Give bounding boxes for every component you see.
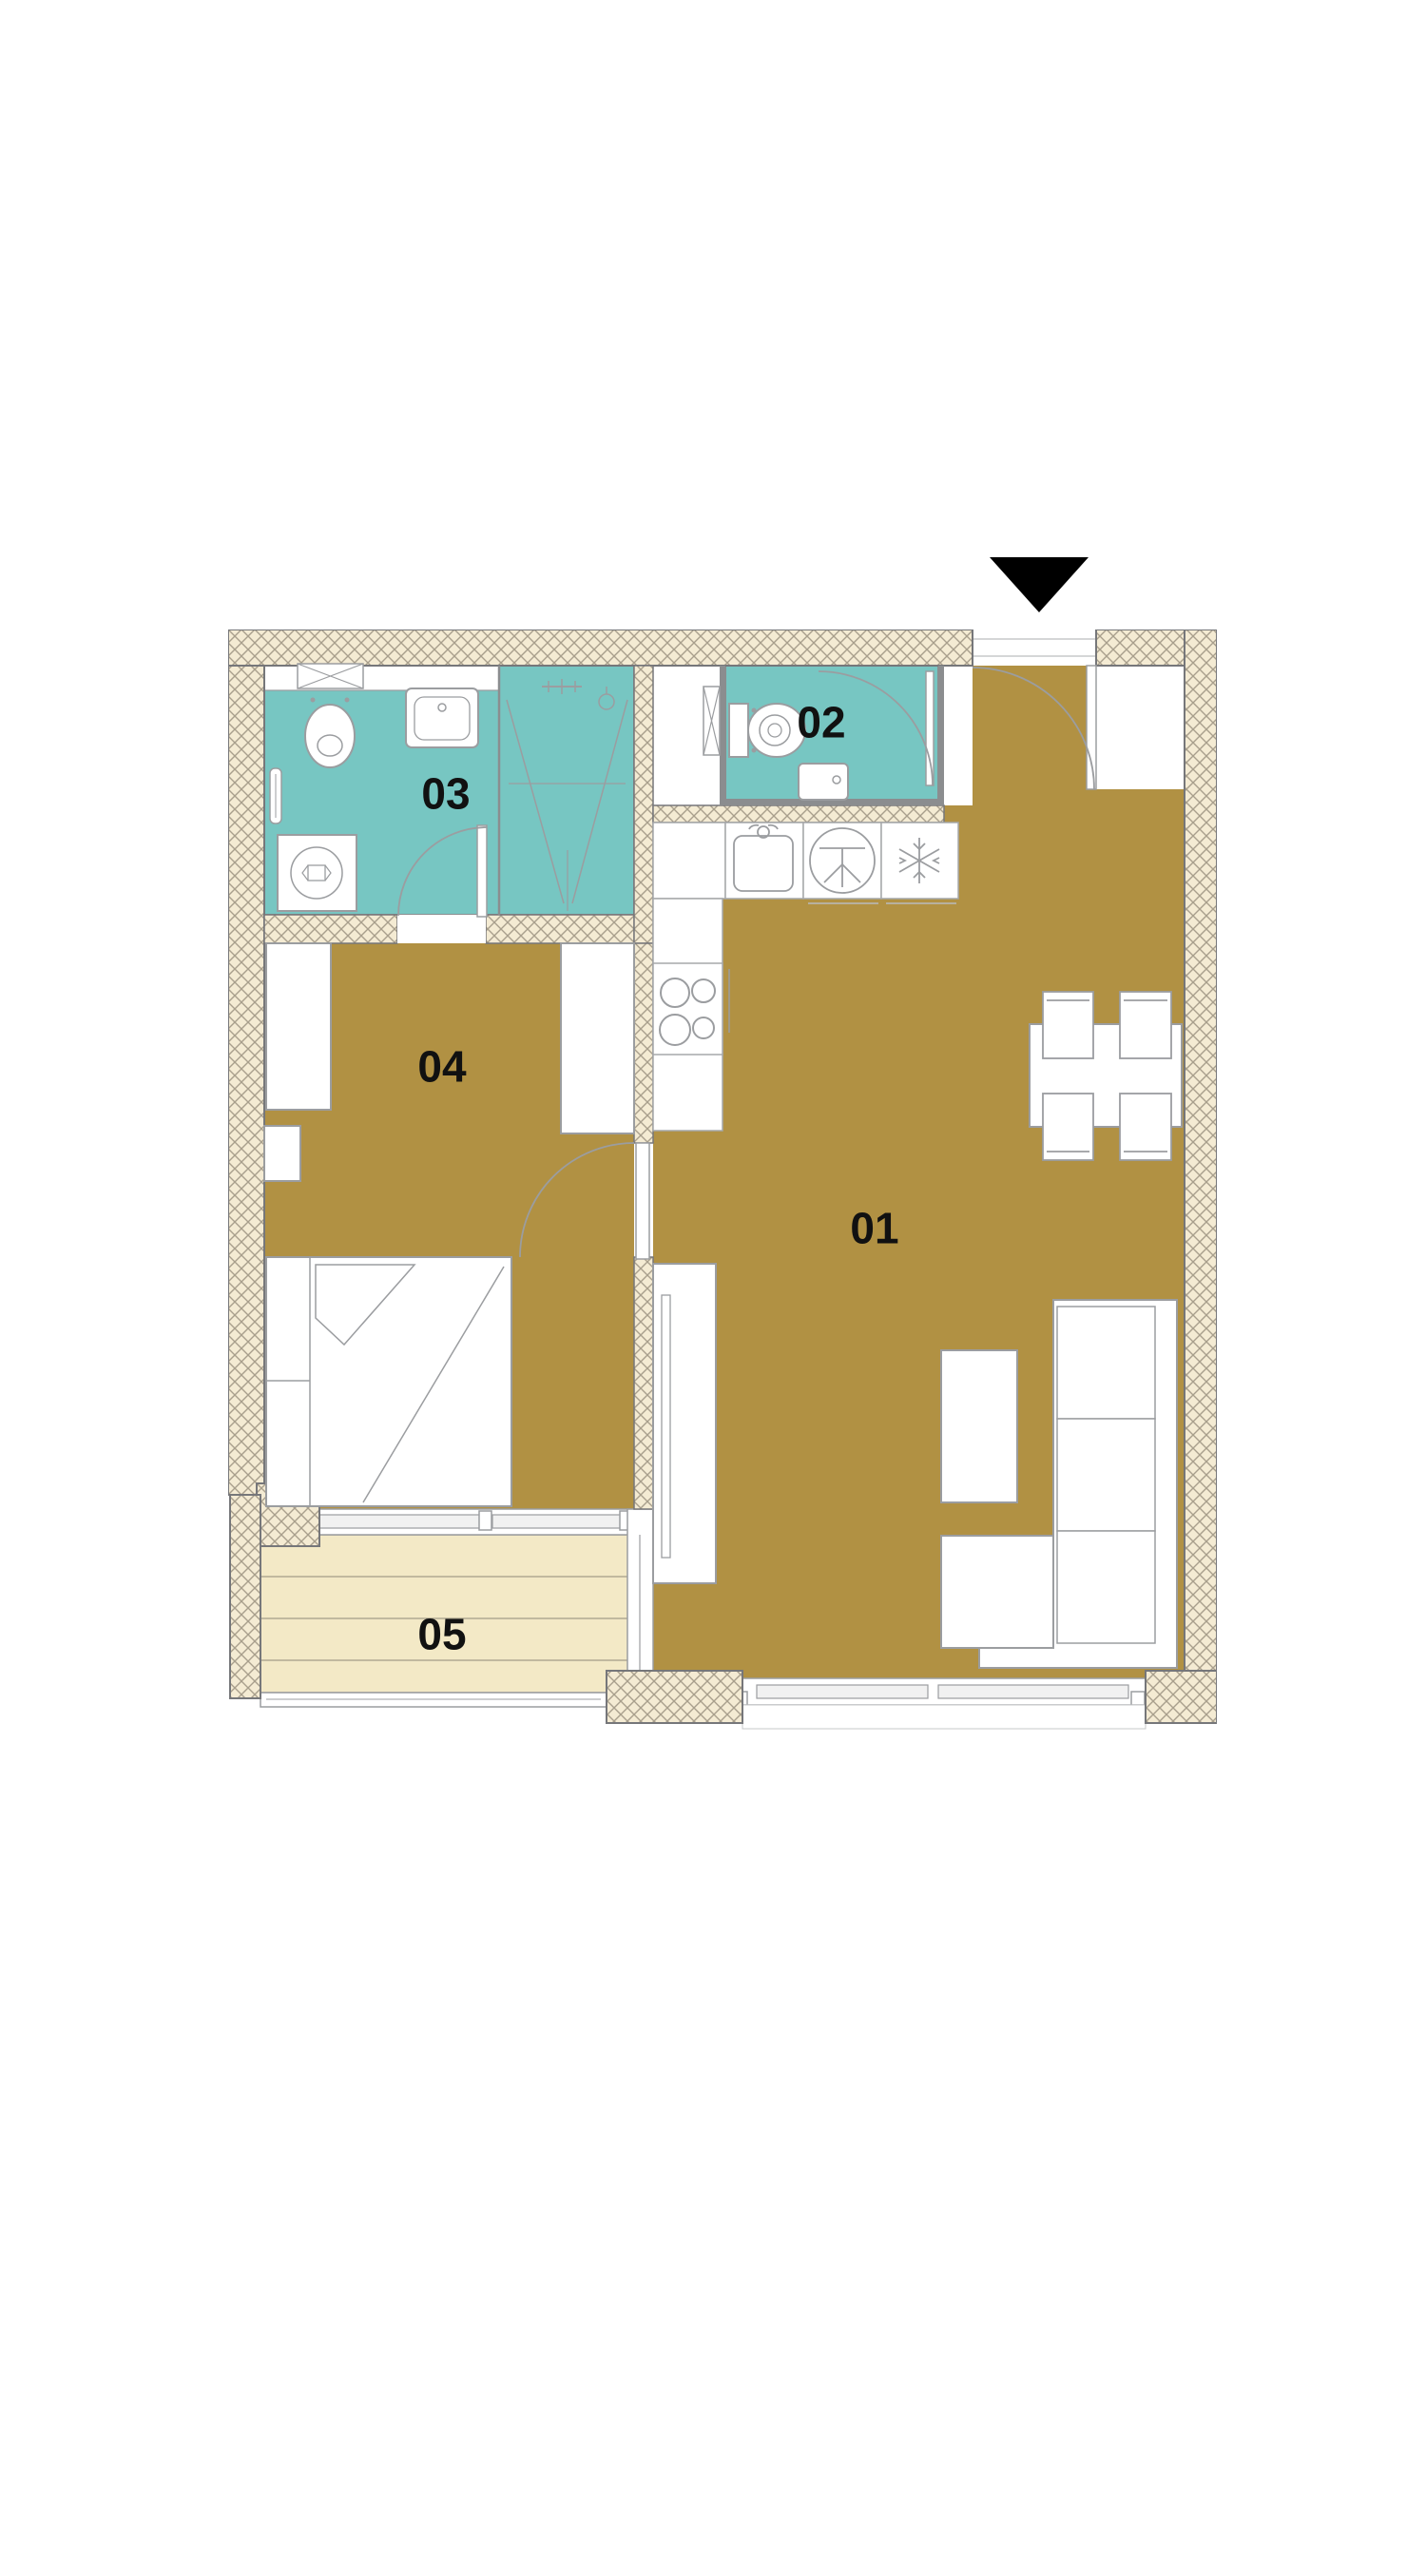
sofa-chaise [941,1536,1053,1648]
coffee-table [941,1350,1017,1502]
chair [1120,992,1171,1058]
window-panel [312,1515,483,1528]
sink-icon [406,688,478,747]
sofa-cushions [1057,1307,1155,1643]
bathroom-bottom-wall-right [486,915,634,943]
chair [1043,992,1093,1058]
floor-plan-page: 01 02 03 04 05 [0,0,1426,2576]
window-cap [479,1511,491,1530]
room-label-01: 01 [850,1204,898,1253]
wall-top-left [228,629,973,666]
entry-closet [1096,666,1185,789]
window-panel [757,1685,928,1698]
bottom-pier-left [607,1671,742,1723]
wc-side-column [944,666,973,805]
bedroom-partition-upper [634,943,653,1143]
nightstand [264,1126,300,1181]
chair [1043,1094,1093,1160]
wall-right [1185,629,1217,1723]
sink-icon [799,764,848,800]
window-sill [742,1705,1146,1729]
chair [1120,1094,1171,1160]
hall-partition-wall [634,666,653,943]
vent-shaft-icon [703,687,720,755]
window-panel [492,1515,626,1528]
window-cap [1131,1692,1145,1705]
wc-bottom-strip-wall [653,805,944,823]
wall-left [228,666,264,1495]
toilet-icon [729,704,805,757]
floor-plan: 01 02 03 04 05 [228,629,1217,1752]
bed [266,1257,511,1506]
bathroom-bottom-wall-left [264,915,397,943]
entrance-arrow-icon [990,557,1089,612]
wc-wall-right [938,666,944,805]
tv-unit [653,1264,716,1583]
room-label-02: 02 [797,698,845,747]
balcony-left-wall [230,1495,260,1698]
wc-wall-left [720,666,725,805]
wardrobe [561,943,634,1133]
room-label-04: 04 [417,1042,467,1092]
wardrobe [266,943,331,1110]
washing-machine-icon [278,835,356,911]
vent-box-icon [298,664,363,688]
bottom-pier-right [1146,1671,1217,1723]
counter-cell [653,823,725,899]
room-label-05: 05 [417,1610,466,1659]
room-label-03: 03 [421,769,470,819]
window-panel [938,1685,1128,1698]
entrance-threshold [973,631,1096,664]
bedroom-partition-lower [634,1257,653,1509]
towel-radiator-icon [270,768,281,823]
